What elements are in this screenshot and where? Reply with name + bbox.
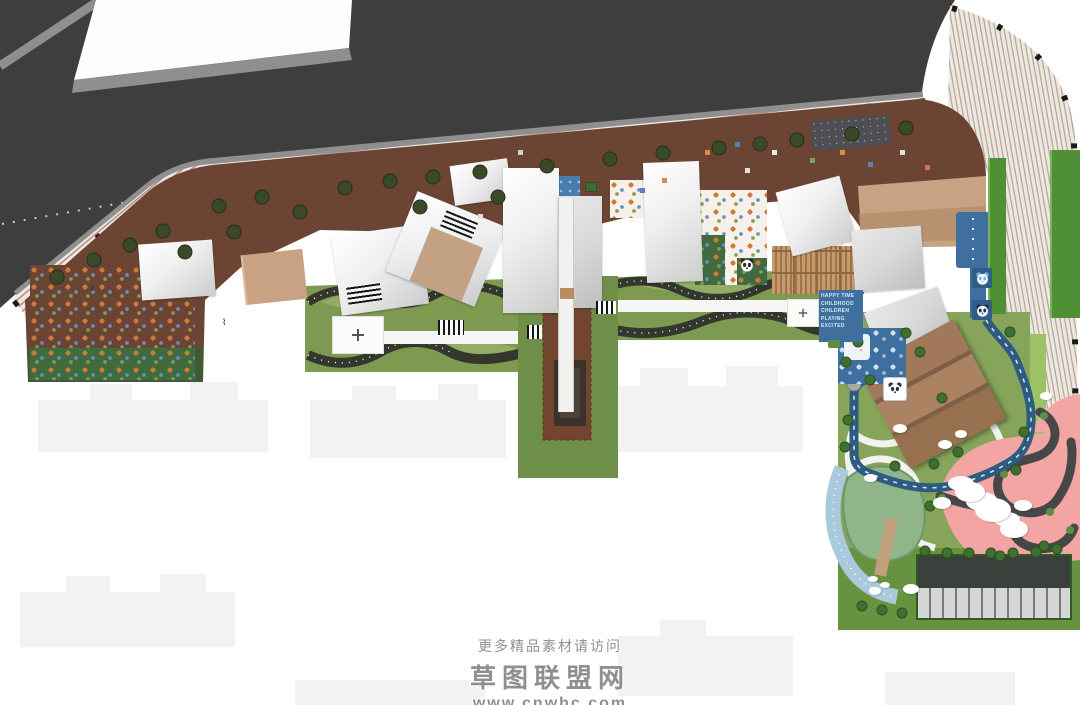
panda-icon bbox=[972, 300, 992, 320]
sign-line: CHILDREN bbox=[821, 308, 861, 316]
deck-bench-area bbox=[772, 246, 864, 294]
axis-walkway bbox=[558, 198, 574, 412]
sign-line: EXCITED bbox=[821, 323, 861, 331]
sign-line: HAPPY TIME bbox=[821, 293, 861, 301]
parking-stalls bbox=[918, 588, 1070, 618]
watermark-line3: www.cnwhc.com bbox=[400, 695, 700, 705]
panda-icon bbox=[972, 268, 992, 288]
lawn-plaza-east bbox=[788, 300, 818, 326]
rock-icon bbox=[1014, 500, 1032, 511]
panda-icon bbox=[884, 378, 906, 400]
watermark-line1: 更多精品素材请访问 bbox=[400, 636, 700, 656]
stairs bbox=[438, 320, 464, 335]
rock-icon bbox=[903, 584, 919, 594]
rock-icon bbox=[1040, 392, 1052, 400]
roof-vent bbox=[346, 282, 382, 305]
retail-building bbox=[851, 226, 925, 293]
central-building-west bbox=[503, 168, 559, 313]
mosaic-pad bbox=[610, 180, 646, 218]
rock-icon bbox=[864, 474, 877, 482]
sign-line: CHILDHOOD bbox=[821, 301, 861, 309]
watermark: 更多精品素材请访问 草图联盟网 www.cnwhc.com bbox=[400, 636, 700, 705]
planter bbox=[585, 182, 597, 192]
panda-icon bbox=[738, 256, 756, 274]
playground-sign: HAPPY TIME CHILDHOOD CHILDREN PLAYING EX… bbox=[819, 290, 863, 342]
sign-green-chip bbox=[828, 340, 840, 348]
parking-aisle bbox=[918, 556, 1070, 588]
sign-line: PLAYING bbox=[821, 316, 861, 324]
rock-icon bbox=[1000, 520, 1028, 538]
compass-icon bbox=[799, 309, 807, 317]
watermark-line2: 草图联盟网 bbox=[400, 658, 700, 695]
rock-icon bbox=[975, 498, 1011, 522]
hedge-strip bbox=[1050, 150, 1080, 318]
lawn-plaza bbox=[333, 317, 383, 353]
rock-icon bbox=[869, 587, 881, 595]
retail-building bbox=[643, 161, 703, 283]
mosaic-green-strip bbox=[30, 348, 195, 380]
stairs bbox=[596, 301, 616, 314]
rock-icon bbox=[955, 430, 967, 438]
marker-icon: ⌇ bbox=[90, 284, 94, 293]
rock-icon bbox=[893, 424, 907, 433]
hedge-strip bbox=[988, 158, 1006, 314]
tan-plaza bbox=[241, 249, 308, 305]
compass-icon bbox=[352, 329, 364, 341]
stairs bbox=[527, 325, 542, 339]
boat-icon bbox=[880, 582, 890, 588]
rock-icon bbox=[933, 497, 951, 509]
retail-building bbox=[138, 239, 216, 300]
rock-icon bbox=[955, 482, 985, 502]
site-master-plan: ⌇ ⌇ HAPPY TIME CHILD bbox=[0, 0, 1080, 705]
boat-icon bbox=[868, 576, 878, 582]
kids-traffic-plaza bbox=[956, 212, 990, 268]
rock-icon bbox=[938, 440, 952, 449]
parking-lot bbox=[916, 554, 1072, 620]
marker-icon: ⌇ bbox=[222, 318, 226, 327]
axis-tan-pad bbox=[560, 288, 574, 299]
